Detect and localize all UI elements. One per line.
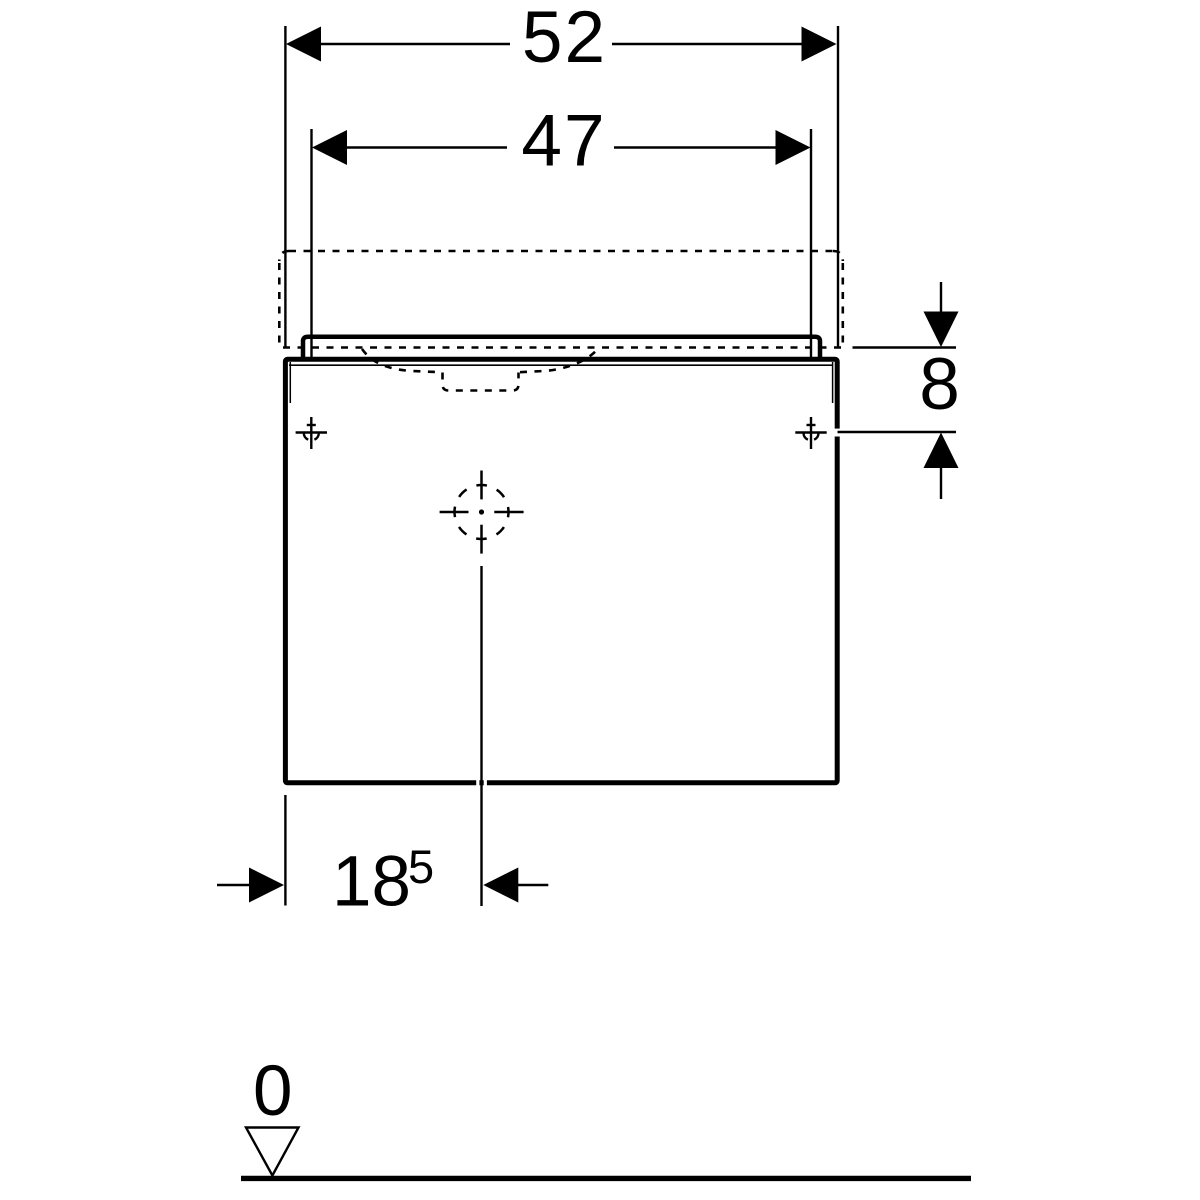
svg-text:47: 47: [521, 101, 606, 182]
svg-text:18: 18: [332, 843, 411, 922]
svg-text:0: 0: [253, 1052, 293, 1131]
svg-text:5: 5: [408, 840, 434, 893]
svg-text:8: 8: [919, 344, 960, 425]
svg-text:52: 52: [522, 0, 607, 78]
